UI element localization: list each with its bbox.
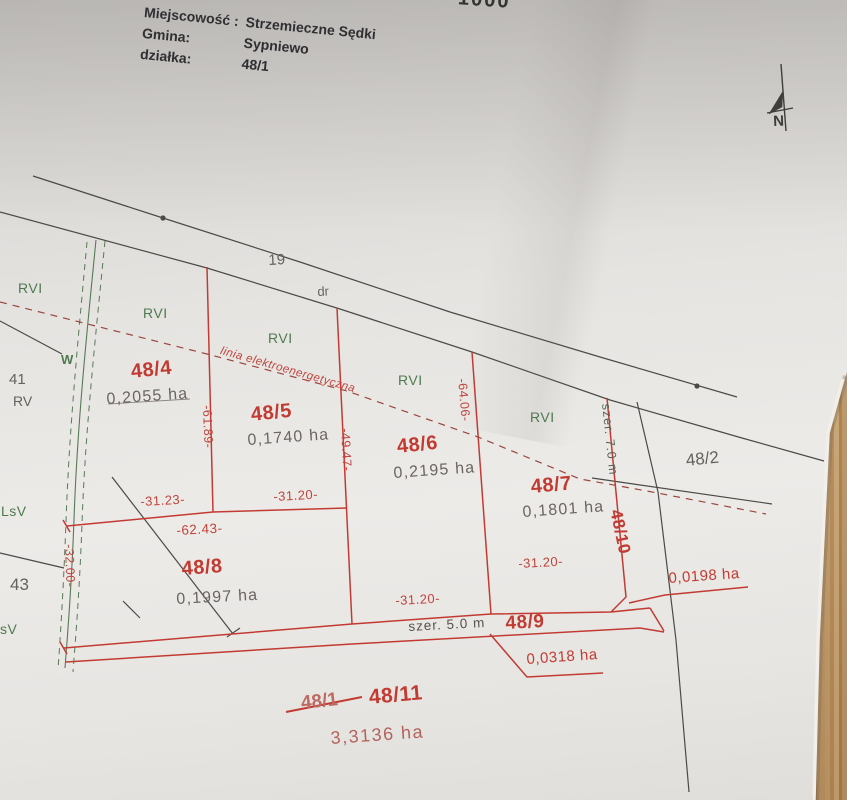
- parcel-number-48-1-struck: 48/1: [300, 690, 339, 713]
- soil-label-sv: sV: [0, 622, 17, 636]
- parcel-number-48-7: 48/7: [530, 473, 573, 496]
- parcel-number-48-6: 48/6: [396, 433, 439, 457]
- neighbour-parcel-41: 41: [9, 372, 26, 387]
- soil-label-lsv: LsV: [1, 504, 27, 518]
- east-boundary-line: [637, 402, 689, 792]
- ditch-west-dashed-line: [58, 242, 87, 670]
- parcel-number-48-2: 48/2: [685, 449, 720, 469]
- soil-label-rvi-4: RVI: [398, 373, 423, 387]
- dim-48-7-bottom: -31.20-: [518, 555, 563, 570]
- parcel-number-48-11: 48/11: [368, 682, 424, 708]
- dim-48-4-east: -61.89-: [201, 405, 215, 449]
- new-subdivision-lines: [60, 267, 748, 712]
- dim-48-5-bottom: -31.20-: [273, 488, 318, 503]
- west-neighbour-line-1: [0, 321, 62, 354]
- dim-48-6-bottom: -31.20-: [395, 592, 440, 607]
- road-parcel-number: 19: [268, 252, 285, 268]
- cadastral-map-photo: Miejscowość : Strzemieczne Sędki Gmina: …: [0, 0, 847, 800]
- parcel-number-48-4: 48/4: [130, 358, 173, 382]
- parcel-number-48-9: 48/9: [505, 612, 545, 633]
- soil-label-rv: RV: [13, 394, 32, 408]
- dim-48-6-east: -64.06-: [456, 378, 472, 422]
- west-neighbour-line-2: [0, 553, 64, 568]
- neighbour-parcel-43: 43: [10, 576, 29, 593]
- dim-48-4-bottom: -31.23-: [140, 493, 185, 508]
- north-letter: N: [773, 114, 784, 129]
- dim-48-6-west: -49.47-: [339, 428, 354, 472]
- soil-label-rvi-5: RVI: [530, 410, 555, 424]
- road-use-label: dr: [317, 284, 329, 298]
- ditch-label-w: W: [61, 353, 74, 366]
- dim-48-8-top: -62.43-: [176, 522, 223, 538]
- boundary-point-dot: [161, 216, 165, 220]
- soil-label-rvi-1: RVI: [18, 281, 43, 295]
- road-48-9-north-edge: [60, 608, 650, 654]
- parcel-48-2-south-line: [592, 478, 772, 504]
- parcel-number-48-8: 48/8: [181, 556, 223, 579]
- dim-48-8-west: -32.00-: [63, 544, 77, 588]
- boundary-48-4-48-5: [207, 267, 213, 512]
- leader-area-48-10: [629, 587, 748, 603]
- boundary-48-6-48-7: [472, 352, 491, 614]
- power-line-dashed: [0, 302, 766, 514]
- road-south-edge-line: [0, 212, 824, 461]
- boundary-point-dot: [695, 384, 699, 388]
- soil-label-rvi-2: RVI: [143, 306, 168, 320]
- parcel-number-48-5: 48/5: [250, 401, 293, 425]
- ditch-lines: [58, 240, 105, 672]
- soil-label-rvi-3: RVI: [268, 331, 293, 345]
